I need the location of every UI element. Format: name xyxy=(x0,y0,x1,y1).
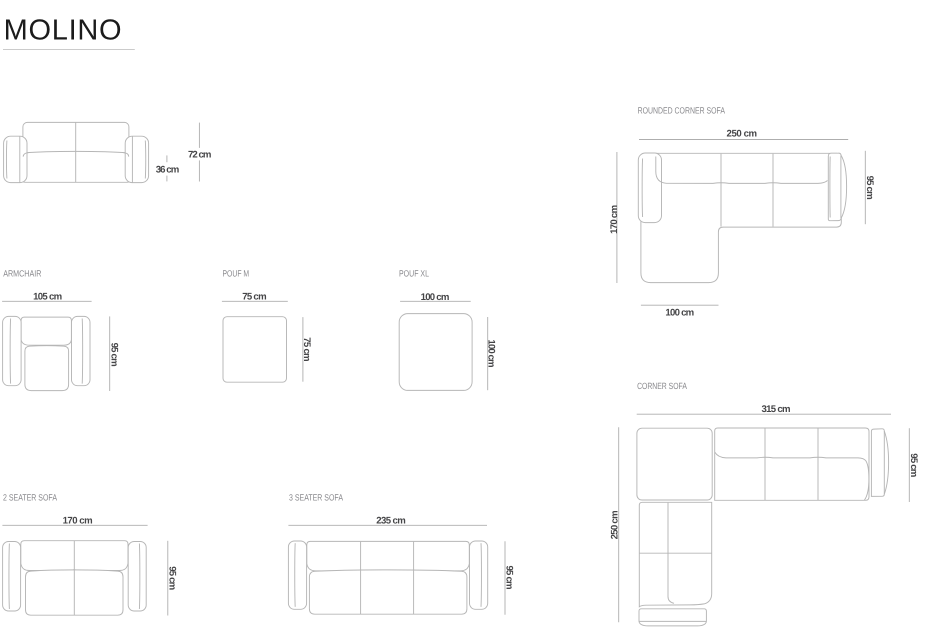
svg-text:ROUNDED CORNER SOFA: ROUNDED CORNER SOFA xyxy=(638,105,725,115)
svg-text:ARMCHAIR: ARMCHAIR xyxy=(3,268,42,278)
svg-text:3 SEATER SOFA: 3 SEATER SOFA xyxy=(289,492,343,502)
svg-text:100 cm: 100 cm xyxy=(665,308,694,319)
svg-text:95 cm: 95 cm xyxy=(166,566,177,590)
svg-text:POUF XL: POUF XL xyxy=(399,268,429,278)
svg-text:POUF M: POUF M xyxy=(223,268,250,278)
svg-text:100 cm: 100 cm xyxy=(486,340,497,368)
svg-text:95 cm: 95 cm xyxy=(908,453,919,477)
svg-text:95 cm: 95 cm xyxy=(864,176,875,200)
svg-text:95 cm: 95 cm xyxy=(504,566,515,590)
svg-text:315 cm: 315 cm xyxy=(762,404,791,415)
svg-text:72 cm: 72 cm xyxy=(188,150,212,161)
svg-text:CORNER SOFA: CORNER SOFA xyxy=(637,381,687,391)
svg-text:95 cm: 95 cm xyxy=(108,343,119,367)
svg-text:75 cm: 75 cm xyxy=(301,337,312,361)
svg-text:250 cm: 250 cm xyxy=(609,510,620,539)
svg-text:250 cm: 250 cm xyxy=(727,129,758,140)
svg-text:170 cm: 170 cm xyxy=(609,205,620,234)
svg-text:MOLINO: MOLINO xyxy=(4,14,122,46)
svg-text:36 cm: 36 cm xyxy=(156,164,180,175)
svg-text:2 SEATER SOFA: 2 SEATER SOFA xyxy=(3,492,57,502)
